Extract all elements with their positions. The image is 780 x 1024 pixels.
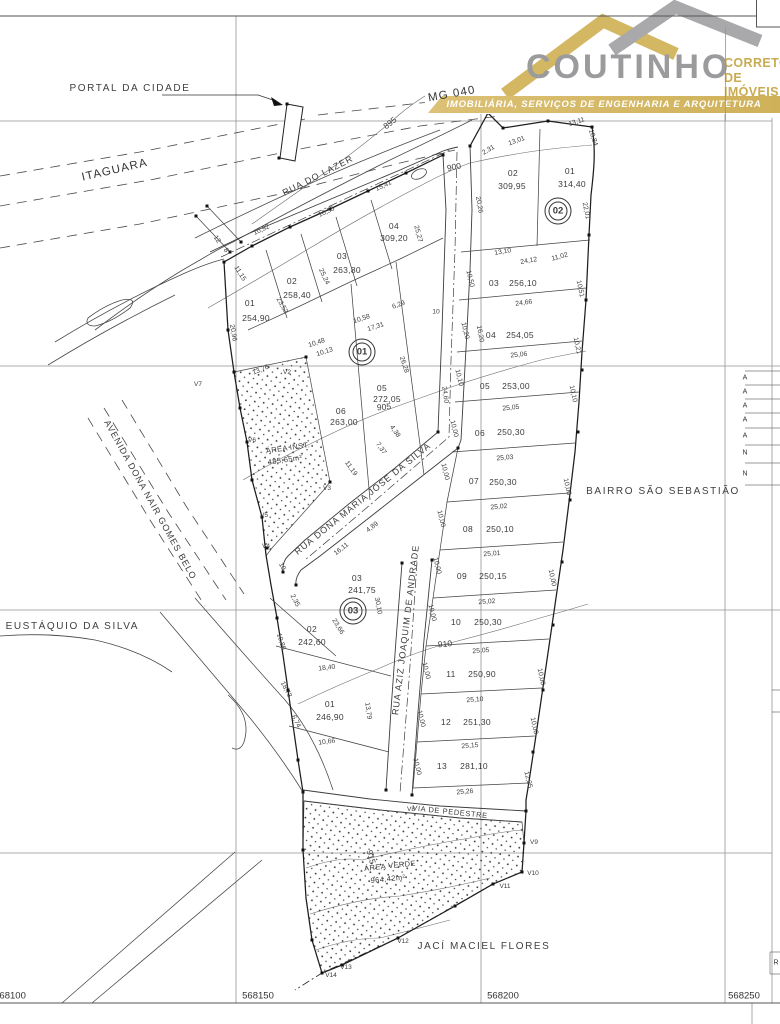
frame-overlay — [0, 0, 780, 1024]
plat-map-page: COUTINHO CORRETOR DE IMÓVEIS IMOBILIÁRIA… — [0, 0, 780, 1024]
